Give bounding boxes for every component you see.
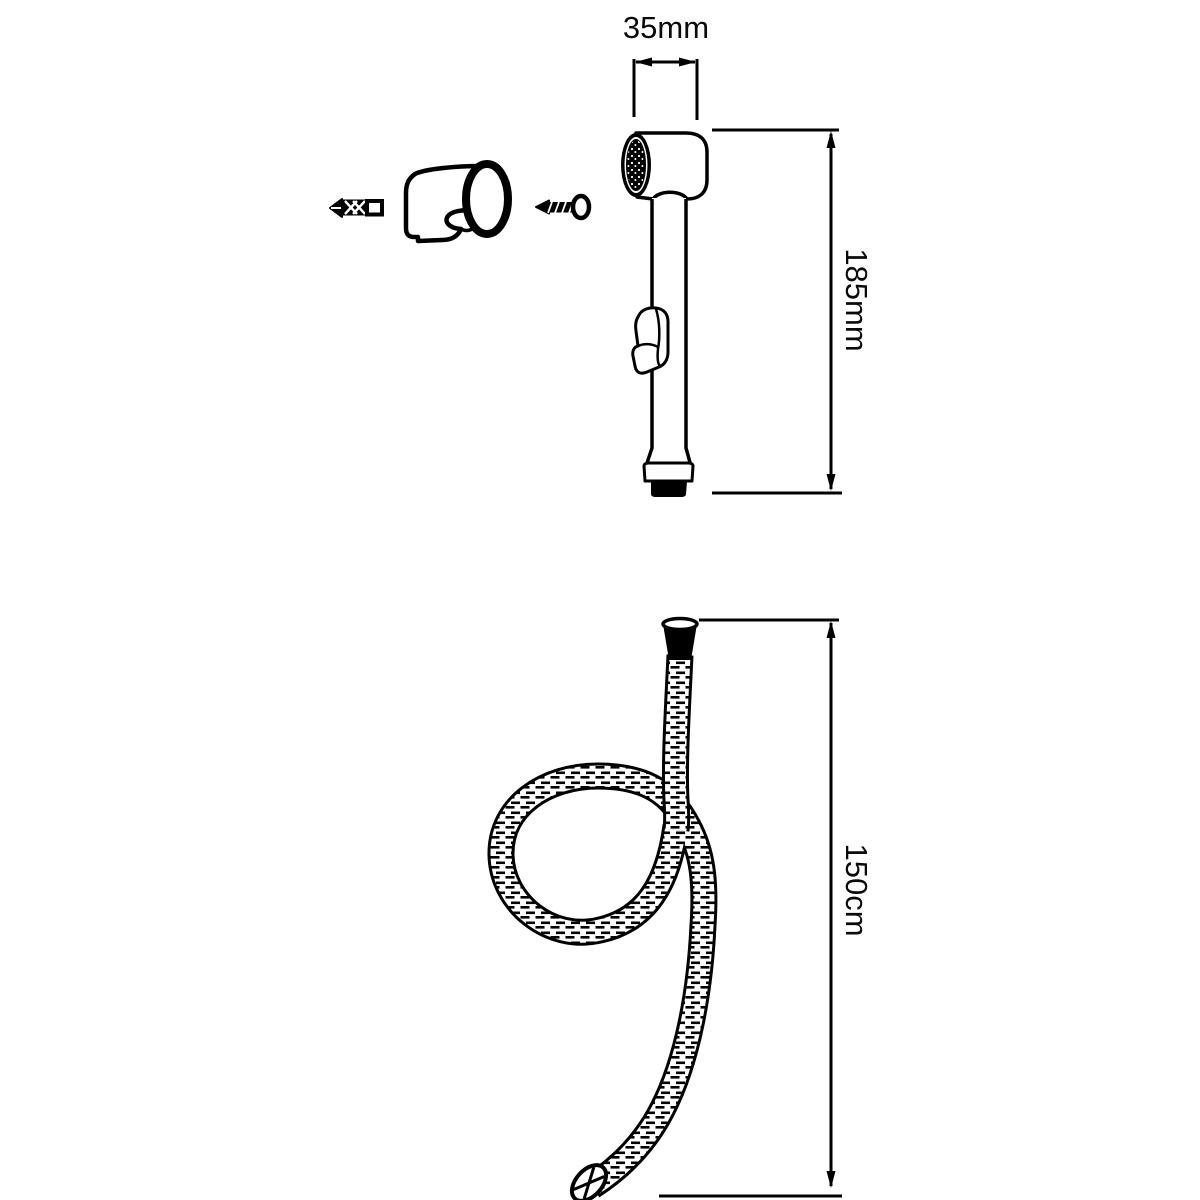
screw-head <box>573 196 589 218</box>
canvas-background <box>0 0 1200 1200</box>
hose-connector-top <box>663 619 697 630</box>
handle-clip <box>633 308 668 373</box>
drawing-canvas: 35mm 185mm <box>0 0 1200 1200</box>
dimension-label-handset-length: 185mm <box>839 248 874 351</box>
handle-connector-thread <box>651 481 687 497</box>
dimension-label-hose-length: 150cm <box>839 843 874 936</box>
wall-bracket-opening <box>466 164 508 234</box>
wall-plug-sleeve-end <box>367 201 382 215</box>
wall-plug <box>330 199 382 217</box>
wall-bracket <box>406 164 508 241</box>
spray-face-nozzles <box>627 140 646 191</box>
hose-upper-tube <box>675 655 680 830</box>
handle-flange <box>644 463 693 481</box>
dimension-label-head-width: 35mm <box>623 10 709 45</box>
hose-texture <box>675 655 680 830</box>
technical-drawing-shower-set: 35mm 185mm <box>0 0 1200 1200</box>
